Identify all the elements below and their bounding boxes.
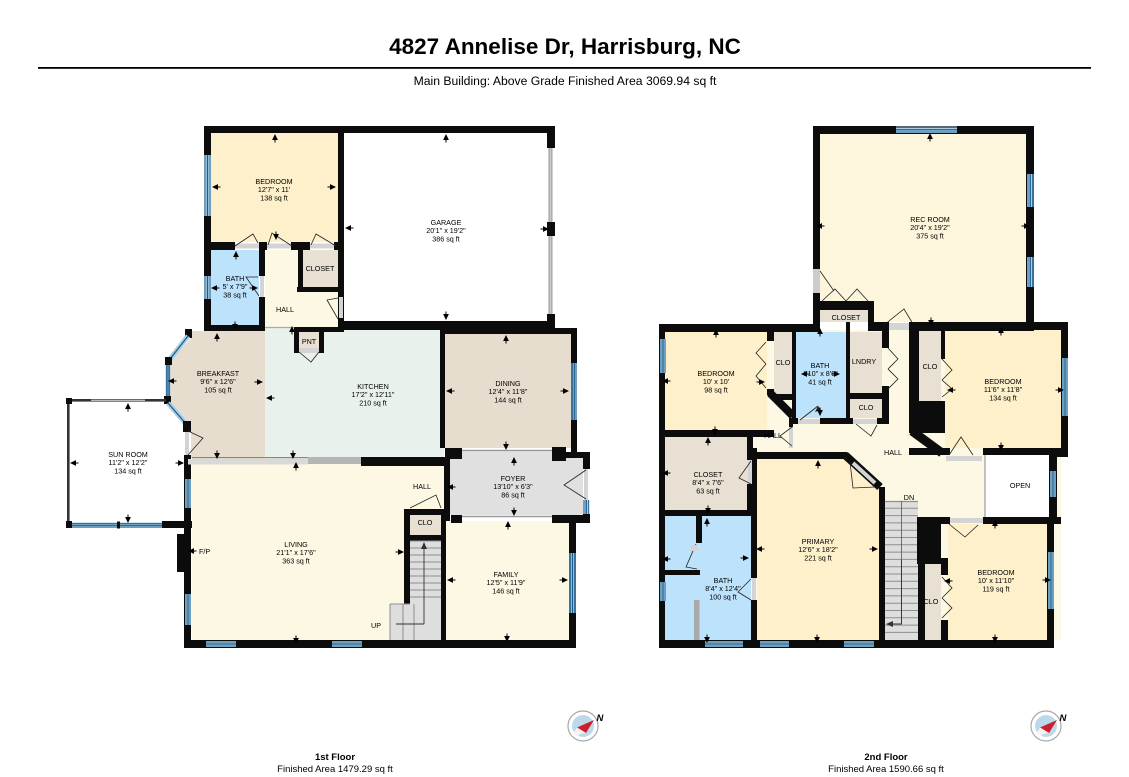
svg-text:38 sq ft: 38 sq ft <box>223 290 247 299</box>
svg-text:OPEN: OPEN <box>1010 481 1030 490</box>
svg-text:41 sq ft: 41 sq ft <box>808 377 832 386</box>
svg-text:HALL: HALL <box>276 305 294 314</box>
svg-text:146 sq ft: 146 sq ft <box>492 586 520 595</box>
svg-text:F/P: F/P <box>199 547 210 556</box>
svg-text:Finished Area 1590.66 sq ft: Finished Area 1590.66 sq ft <box>828 764 944 775</box>
svg-text:Main Building: Above Grade Fin: Main Building: Above Grade Finished Area… <box>414 74 717 88</box>
svg-text:HALL: HALL <box>884 448 902 457</box>
svg-text:N: N <box>597 713 605 724</box>
svg-text:98 sq ft: 98 sq ft <box>704 385 728 394</box>
svg-text:86 sq ft: 86 sq ft <box>501 490 525 499</box>
svg-text:CLO: CLO <box>776 358 791 367</box>
svg-text:375 sq ft: 375 sq ft <box>916 231 944 240</box>
svg-text:134 sq ft: 134 sq ft <box>114 466 142 475</box>
svg-text:386 sq ft: 386 sq ft <box>432 234 460 243</box>
svg-text:105 sq ft: 105 sq ft <box>204 385 232 394</box>
svg-text:CLOSET: CLOSET <box>832 313 861 322</box>
svg-text:N: N <box>1060 713 1068 724</box>
svg-text:CLO: CLO <box>924 597 939 606</box>
svg-text:2nd Floor: 2nd Floor <box>864 752 908 763</box>
svg-text:UP: UP <box>371 621 381 630</box>
svg-text:144 sq ft: 144 sq ft <box>494 395 522 404</box>
svg-text:63 sq ft: 63 sq ft <box>696 486 720 495</box>
svg-text:CLO: CLO <box>859 403 874 412</box>
svg-text:CLO: CLO <box>418 518 433 527</box>
svg-text:1st Floor: 1st Floor <box>315 752 355 763</box>
svg-text:HALL: HALL <box>764 431 782 440</box>
svg-text:134 sq ft: 134 sq ft <box>989 393 1017 402</box>
svg-text:DN: DN <box>904 493 914 502</box>
svg-text:PNT: PNT <box>302 337 317 346</box>
svg-text:LNDRY: LNDRY <box>852 357 876 366</box>
svg-text:100 sq ft: 100 sq ft <box>709 592 737 601</box>
svg-text:363 sq ft: 363 sq ft <box>282 556 310 565</box>
svg-text:138 sq ft: 138 sq ft <box>260 193 288 202</box>
svg-text:210 sq ft: 210 sq ft <box>359 398 387 407</box>
svg-text:CLOSET: CLOSET <box>306 264 335 273</box>
svg-text:4827 Annelise Dr, Harrisburg,: 4827 Annelise Dr, Harrisburg, NC <box>389 34 741 59</box>
svg-text:119 sq ft: 119 sq ft <box>982 584 1009 593</box>
svg-text:CLO: CLO <box>923 362 938 371</box>
svg-text:Finished Area 1479.29 sq ft: Finished Area 1479.29 sq ft <box>277 764 393 775</box>
svg-text:221 sq ft: 221 sq ft <box>804 553 832 562</box>
svg-text:HALL: HALL <box>413 482 431 491</box>
